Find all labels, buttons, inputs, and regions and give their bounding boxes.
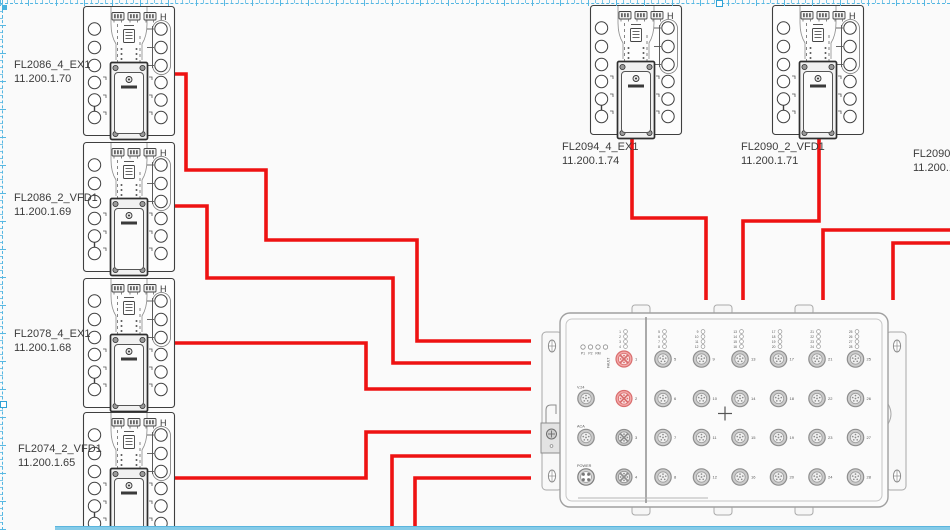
device-ip: 11.200.1.: [913, 162, 950, 176]
svg-text:22: 22: [828, 396, 833, 401]
svg-text:ACA: ACA: [577, 425, 585, 429]
svg-text:13: 13: [733, 330, 737, 334]
device-ip: 11.200.1.65: [18, 457, 102, 471]
device-ip: 11.200.1.70: [14, 73, 90, 87]
device-FL2074_2_VFD1[interactable]: H: [84, 413, 175, 530]
svg-text:19: 19: [790, 435, 795, 440]
svg-text:6: 6: [658, 335, 660, 339]
svg-text:22: 22: [810, 335, 814, 339]
device-name: FL2094_4_EX1: [562, 141, 638, 153]
device-name: FL2086_2_VFD1: [14, 192, 98, 204]
device-ip: 11.200.1.74: [562, 155, 638, 169]
svg-text:17: 17: [772, 330, 776, 334]
svg-text:25: 25: [867, 357, 872, 362]
svg-text:23: 23: [810, 340, 814, 344]
svg-text:15: 15: [751, 435, 756, 440]
device-label-FL2086_4_EX1[interactable]: FL2086_4_EX111.200.1.70: [14, 59, 90, 86]
svg-text:10: 10: [713, 396, 718, 401]
svg-text:21: 21: [810, 330, 814, 334]
svg-text:23: 23: [828, 435, 833, 440]
svg-text:9: 9: [697, 330, 699, 334]
selection-corner-mark[interactable]: [2, 5, 7, 10]
device-label-FL2090_2_VFD1[interactable]: FL2090_2_VFD111.200.1.71: [741, 141, 825, 168]
svg-text:25: 25: [849, 330, 853, 334]
central-switch[interactable]: P1P2RMFAULT12345678910111213141516171819…: [541, 305, 906, 515]
svg-text:24: 24: [828, 475, 833, 480]
selection-handle-top[interactable]: [716, 0, 723, 7]
device-ip: 11.200.1.69: [14, 206, 98, 220]
selection-marquee-left-major-ticks: [0, 0, 6, 530]
device-ip: 11.200.1.68: [14, 342, 90, 356]
svg-text:4: 4: [619, 345, 621, 349]
svg-text:27: 27: [867, 435, 872, 440]
svg-text:POWER: POWER: [577, 464, 592, 468]
cable-FL2086_4_EX1[interactable]: [174, 74, 531, 341]
device-FL2078_4_EX1[interactable]: H: [84, 279, 175, 412]
svg-text:P1: P1: [581, 352, 585, 356]
svg-text:24: 24: [810, 345, 814, 349]
svg-text:FAULT: FAULT: [607, 358, 611, 368]
device-name: FL2078_4_EX1: [14, 328, 90, 340]
selection-marquee-left-line: [2, 0, 3, 530]
svg-text:P2: P2: [588, 352, 592, 356]
svg-text:16: 16: [751, 475, 756, 480]
svg-text:10: 10: [695, 335, 699, 339]
svg-text:RM: RM: [595, 352, 600, 356]
svg-text:3: 3: [619, 340, 621, 344]
svg-text:21: 21: [828, 357, 833, 362]
svg-text:1: 1: [619, 330, 621, 334]
svg-text:26: 26: [849, 335, 853, 339]
cable-offscreen-right-2[interactable]: [893, 243, 950, 300]
cable-offscreen-right-1[interactable]: [823, 230, 950, 300]
svg-text:28: 28: [849, 345, 853, 349]
selection-marquee-top-line: [0, 3, 950, 4]
svg-text:18: 18: [772, 335, 776, 339]
svg-text:8: 8: [658, 345, 660, 349]
cable-offscreen-bottom-2[interactable]: [415, 478, 531, 527]
svg-text:13: 13: [751, 357, 756, 362]
svg-text:20: 20: [772, 345, 776, 349]
svg-text:7: 7: [658, 340, 660, 344]
svg-text:28: 28: [867, 475, 872, 480]
device-name: FL2086_4_EX1: [14, 59, 90, 71]
svg-text:20: 20: [790, 475, 795, 480]
cable-offscreen-bottom-1[interactable]: [392, 456, 531, 527]
svg-text:19: 19: [772, 340, 776, 344]
svg-text:17: 17: [790, 357, 795, 362]
cable-FL2094_4_EX1[interactable]: [632, 139, 706, 300]
device-ip: 11.200.1.71: [741, 155, 825, 169]
device-label-FL2094_4_EX1[interactable]: FL2094_4_EX111.200.1.74: [562, 141, 638, 168]
page-edge-bar: [55, 526, 950, 530]
device-name: FL2090_4: [913, 148, 950, 160]
svg-text:12: 12: [695, 345, 699, 349]
svg-text:26: 26: [867, 396, 872, 401]
svg-text:11: 11: [695, 340, 699, 344]
selection-handle-left[interactable]: [0, 401, 7, 408]
diagram-canvas[interactable]: HHHHHHP1P2RMFAULT12345678910111213141516…: [0, 0, 950, 530]
device-FL2090_2_VFD1[interactable]: H: [773, 6, 864, 139]
svg-text:5: 5: [658, 330, 660, 334]
device-label-partial[interactable]: FL2090_411.200.1.: [913, 148, 950, 175]
svg-text:16: 16: [733, 345, 737, 349]
svg-text:15: 15: [733, 340, 737, 344]
diagram-scene: HHHHHHP1P2RMFAULT12345678910111213141516…: [0, 0, 950, 530]
device-name: FL2090_2_VFD1: [741, 141, 825, 153]
device-label-FL2078_4_EX1[interactable]: FL2078_4_EX111.200.1.68: [14, 328, 90, 355]
svg-text:27: 27: [849, 340, 853, 344]
device-name: FL2074_2_VFD1: [18, 443, 102, 455]
svg-text:14: 14: [733, 335, 737, 339]
svg-text:V.24: V.24: [577, 386, 584, 390]
device-FL2094_4_EX1[interactable]: H: [591, 6, 682, 139]
cable-FL2078_4_EX1[interactable]: [174, 343, 531, 389]
svg-text:12: 12: [713, 475, 718, 480]
device-label-FL2074_2_VFD1[interactable]: FL2074_2_VFD111.200.1.65: [18, 443, 102, 470]
device-FL2086_4_EX1[interactable]: H: [84, 7, 175, 140]
device-label-FL2086_2_VFD1[interactable]: FL2086_2_VFD111.200.1.69: [14, 192, 98, 219]
svg-text:2: 2: [619, 335, 621, 339]
svg-text:14: 14: [751, 396, 756, 401]
svg-text:18: 18: [790, 396, 795, 401]
